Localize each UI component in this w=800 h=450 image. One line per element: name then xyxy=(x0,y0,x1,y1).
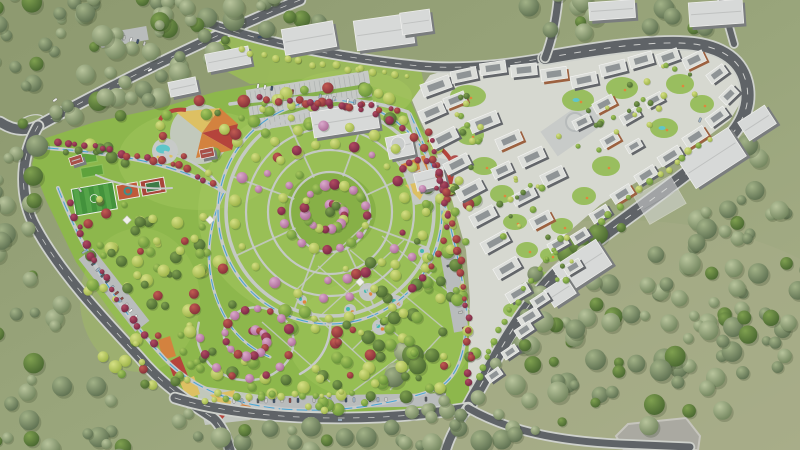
masterplan-aerial-view xyxy=(0,0,800,450)
masterplan-rendering xyxy=(0,0,800,450)
